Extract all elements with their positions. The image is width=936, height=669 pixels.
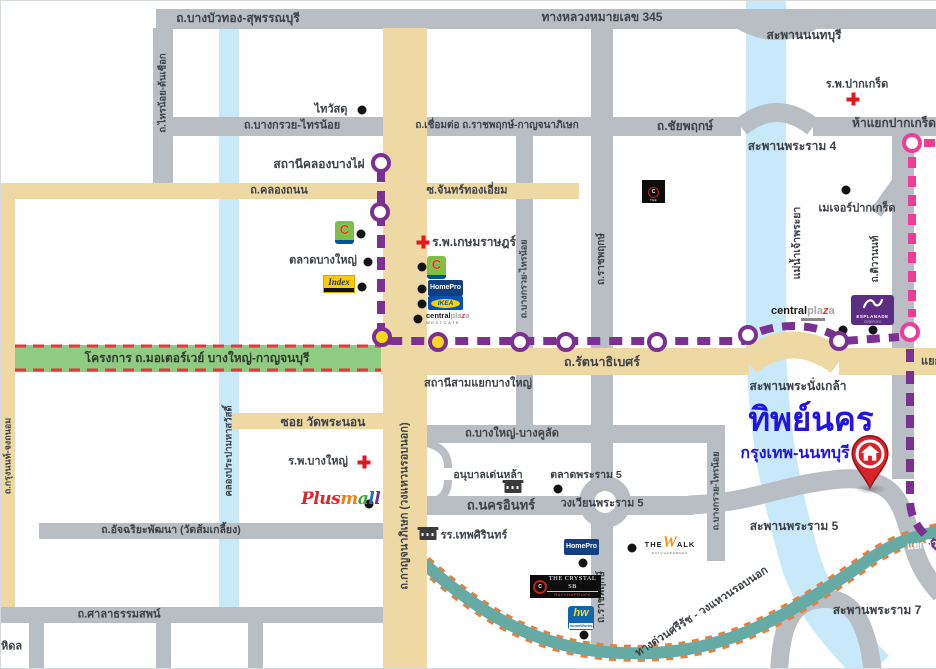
logo-letter: s (331, 489, 340, 509)
road-label-highway-345: ทางหลวงหมายเลข 345 (542, 11, 663, 23)
logo-strip (335, 240, 354, 244)
motorway-project-label: โครงการ ถ.มอเตอร์เวย์ บางใหญ่-กาญจนบุรี (85, 352, 310, 364)
logo-text: C (335, 223, 354, 237)
poi-dot (869, 326, 878, 335)
logo-esplanade-cineplex: ESPLANADE CINEPLEX (851, 295, 894, 325)
poi-dot (418, 285, 427, 294)
school-building-icon (420, 530, 437, 540)
logo-text: HomePro (428, 280, 463, 296)
poi-dot (554, 485, 563, 494)
bridge-label-rama4: สะพานพระราม 4 (748, 140, 837, 152)
poi-label-denla-kindergarten: อนุบาลเด่นหล้า (453, 470, 522, 481)
logo-text: THE CRYSTAL (642, 198, 665, 203)
poi-dot (418, 300, 427, 309)
logo-strip (324, 288, 354, 292)
logo-text-column: THE CRYSTAL SB RATCHAPRUEK (547, 575, 598, 598)
logo-subtext: RATCHAPHRUEK (639, 551, 701, 555)
mrt-purple-station-marker (738, 325, 758, 345)
poi-label-pakkret-hospital: ร.พ.ปากเกร็ด (826, 80, 889, 91)
logo-text: THE CRYSTAL SB (547, 575, 598, 592)
logo-text: IKEA (431, 299, 460, 308)
expressway-label-sirat: ทางด่วนศรีรัช - วงแหวนรอบนอก (634, 565, 770, 659)
poi-dot (364, 258, 373, 267)
bridge-label-phranangklao: สะพานพระนั่งเกล้า (750, 380, 847, 392)
mrt-purple-station-marker (372, 327, 392, 347)
logo-text: C (427, 258, 446, 272)
label-wongwian-rama5: วงเวียนพระราม 5 (560, 499, 643, 510)
road-label-sainoi-tonchueak: ถ.ไทรน้อย-ต้นเชือก (158, 53, 168, 132)
road-label-bangkruai-sainoi-v2: ถ.บางกรวย-ไทรน้อย (712, 452, 721, 531)
logo-letter: P (301, 489, 313, 509)
expressway-label-yaek-tiwanon: แยกติว (907, 539, 936, 552)
logo-text: ALK (677, 540, 695, 549)
road-label-bangkruai-sainoi-v1: ถ.บางกรวย-ไทรน้อย (520, 240, 529, 319)
logo-bigc-rattanathibet: C (427, 256, 446, 279)
pin-shadow (855, 484, 887, 494)
logo-ikea: IKEA (428, 296, 463, 310)
road-label-chaiyaphruek: ถ.ชัยพฤกษ์ (657, 120, 713, 132)
bridge-label-rama5: สะพานพระราม 5 (750, 520, 839, 532)
logo-the-walk-ratchaphruek: THEWALK RATCHAPHRUEK (639, 534, 701, 558)
logo-centralplaza-westgate: centralplaza WESTGATE (426, 311, 469, 325)
logo-text: a (465, 311, 469, 320)
poi-label-thaiwatsadu: ไทวัสดุ (315, 105, 348, 116)
road-label-nakhon-in: ถ.นครอินทร์ (467, 499, 535, 512)
mrt-purple-station-marker (428, 332, 448, 352)
mrt-purple-station-marker (370, 202, 390, 222)
logo-text: CINEPLEX (851, 320, 894, 325)
poi-label-debsirin-school: รร.เทพศิรินทร์ (441, 531, 508, 542)
road-label-atchariya-phatthana: ถ.อัจฉริยะพัฒนา (วัดส้มเกลี้ยง) (101, 525, 240, 536)
logo-letter: a (358, 489, 369, 509)
road-label-yaek: แยก (921, 357, 936, 368)
logo-text: pla (451, 311, 462, 320)
logo-text: hw (568, 606, 594, 621)
logo-subtext: homeWorks (569, 623, 593, 629)
esplanade-swirl-icon (862, 297, 884, 309)
road-label-soi-wat-phranon: ซอย วัดพระนอน (281, 416, 366, 428)
logo-text: central (426, 311, 451, 320)
poi-label-bangyai-hospital: ร.พ.บางใหญ่ (288, 457, 348, 468)
road-label-krungnon-chongthanom: ถ.กรุงนนท์-จงถนอม (4, 418, 13, 494)
hospital-cross-icon (358, 456, 371, 469)
poi-dot (842, 186, 851, 195)
poi-dot (418, 263, 427, 272)
logo-index-living-mall: Index (323, 275, 355, 293)
mrt-purple-station-marker (371, 153, 391, 173)
logo-the-crystal-sb-ratchapruek: C THE CRYSTAL SB RATCHAPRUEK (530, 575, 601, 598)
destination-title: ทิพย์นคร (748, 403, 873, 436)
logo-letter: C (533, 580, 547, 594)
mrt-purple-station-marker (829, 331, 849, 351)
logo-homepro-ratchaphruek: HomePro (564, 539, 599, 555)
logo-text: pla (807, 305, 823, 317)
logo-homepro-rattanathibet: HomePro (428, 280, 463, 296)
poi-dot (358, 106, 367, 115)
logo-oval: IKEA (431, 299, 460, 308)
logo-letter: m (340, 489, 358, 509)
logo-text: RATCHAPRUEK (547, 592, 598, 598)
mrt-pink-station-marker (900, 322, 920, 342)
home-pin-icon (849, 434, 891, 490)
poi-label-talat-rama5: ตลาดพระราม 5 (550, 470, 621, 481)
canal-label-prapa-mahasawat: คลองประปามหาสวัสดิ์ (224, 405, 234, 496)
poi-dot (628, 544, 637, 553)
station-label-samyaek-bangyai: สถานีสามแยกบางใหญ่ (424, 379, 532, 390)
poi-label-kasemrad-hospital: ร.พ.เกษมราษฎร์ (432, 236, 516, 248)
logo-the-crystal: C THE CRYSTAL (642, 180, 665, 203)
poi-dot (357, 230, 366, 239)
poi-dot (580, 631, 589, 640)
destination-subtitle: กรุงเทพ-นนทบุรี (740, 446, 849, 462)
junction-label-hayaek-pakkret: ห้าแยกปากเกร็ด (852, 117, 936, 129)
poi-label-talat-bangyai: ตลาดบางใหญ่ (289, 256, 357, 267)
bridge-label-nonthaburi: สะพานนนทบุรี (767, 29, 842, 41)
road-label-soi-chanthong-iam: ซ.จันทร์ทองเอี่ยม (427, 186, 508, 197)
logo-text: THE (645, 540, 663, 549)
poi-dot (579, 559, 588, 568)
road-label-connect-ratchaphruek: ถ.เชื่อมต่อ ถ.ราชพฤกษ์-กาญจนาภิเษก (415, 121, 578, 131)
logo-bigc-bangyai: C (335, 221, 354, 244)
logo-subtext: WESTGATE (426, 320, 469, 325)
road-label-rattanathibet: ถ.รัตนาธิเบศร์ (564, 356, 640, 369)
station-label-khlong-bang-phai: สถานีคลองบางไผ่ (273, 158, 364, 170)
road-label-tiwanon: ถ.ติวานนท์ (871, 236, 881, 283)
road-label-bangyai-bangkhulat: ถ.บางใหญ่-บางคูลัด (465, 429, 559, 440)
road-label-kanchanaphisek: ถ.กาญจนาภิเษก (วงแหวนรอบนอก) (400, 422, 411, 589)
mrt-pink-station-marker (902, 133, 922, 153)
map-canvas: ถ.บางบัวทอง-สุพรรณบุรีทางหลวงหมายเลข 345… (0, 0, 936, 669)
school-building-icon (505, 483, 522, 493)
mrt-purple-station-marker (510, 332, 530, 352)
logo-plusmall: Plusmall (301, 485, 380, 513)
logo-strip (427, 275, 446, 279)
poi-dot (358, 283, 367, 292)
road-label-ratchaphruek-v1: ถ.ราชพฤกษ์ (597, 233, 607, 285)
logo-text: a (828, 305, 834, 317)
road-label-khlong-thanon: ถ.คลองถนน (250, 186, 308, 197)
hospital-cross-icon (417, 236, 430, 249)
bridge-label-rama7: สะพานพระราม 7 (833, 604, 922, 616)
logo-text: Index (324, 276, 354, 288)
logo-text: HomePro (564, 539, 599, 555)
road-label-salathammasop: ถ.ศาลาธรรมสพน์ (77, 610, 160, 621)
poi-label-major-pakkret: เมเจอร์ปากเกร็ด (818, 204, 895, 215)
poi-dot (414, 315, 423, 324)
logo-letter: C (648, 187, 659, 198)
logo-text: central (771, 305, 807, 317)
road-label-bangkruai-sainoi: ถ.บางกรวย-ไทรน้อย (244, 121, 340, 132)
destination-pin (849, 434, 891, 494)
mrt-purple-station-marker (556, 332, 576, 352)
road-label-bangbuathong-suphanburi: ถ.บางบัวทอง-สุพรรณบุรี (176, 12, 299, 24)
logo-homeworks: hw homeWorks (568, 606, 594, 630)
river-label-chaophraya: แม่น้ำเจ้าพระยา (792, 207, 803, 280)
map-overlay: ถ.บางบัวทอง-สุพรรณบุรีทางหลวงหมายเลข 345… (1, 1, 936, 668)
hospital-cross-icon (847, 93, 860, 106)
logo-subtext-bar (801, 318, 825, 321)
mrt-purple-station-marker (647, 332, 667, 352)
logo-letter: u (319, 489, 331, 509)
logo-letter: l (374, 489, 380, 509)
logo-centralplaza-rattanathibet: centralplaza (771, 305, 835, 321)
logo-text: W (663, 534, 677, 551)
label-mahidol-partial: หิดล (1, 642, 22, 653)
